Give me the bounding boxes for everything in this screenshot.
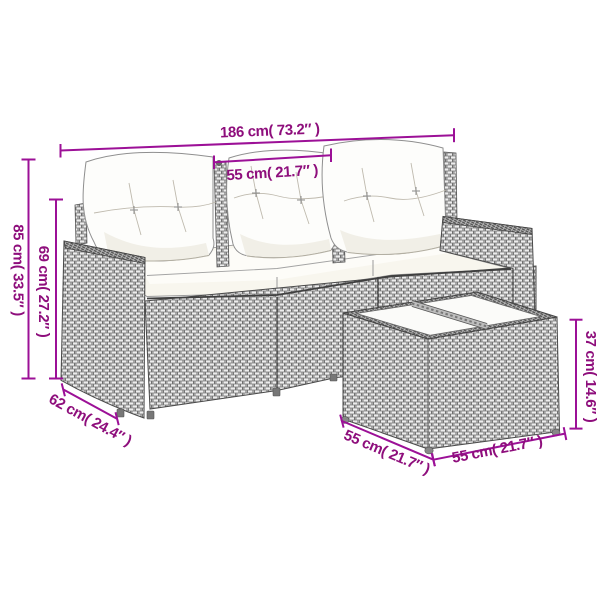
svg-text:37 cm( 14.6″ ): 37 cm( 14.6″ ) <box>582 331 599 423</box>
svg-text:85 cm( 33.5″ ): 85 cm( 33.5″ ) <box>10 224 27 316</box>
svg-text:69 cm( 27.2″ ): 69 cm( 27.2″ ) <box>35 246 52 338</box>
